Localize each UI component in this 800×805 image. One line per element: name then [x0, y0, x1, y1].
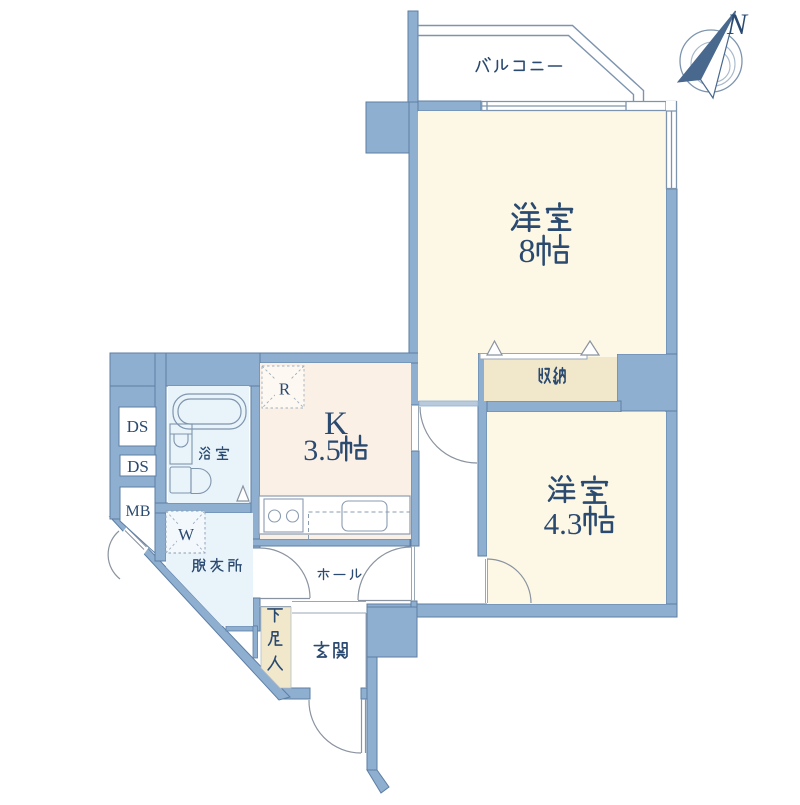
svg-text:3.5: 3.5 — [303, 434, 341, 467]
svg-text:DS: DS — [127, 417, 149, 436]
svg-text:8: 8 — [519, 233, 536, 270]
svg-text:N: N — [726, 8, 749, 41]
svg-text:W: W — [178, 525, 195, 544]
svg-text:4.3: 4.3 — [544, 506, 583, 541]
svg-text:DS: DS — [127, 457, 149, 476]
svg-text:R: R — [279, 380, 291, 399]
svg-text:MB: MB — [126, 503, 151, 520]
